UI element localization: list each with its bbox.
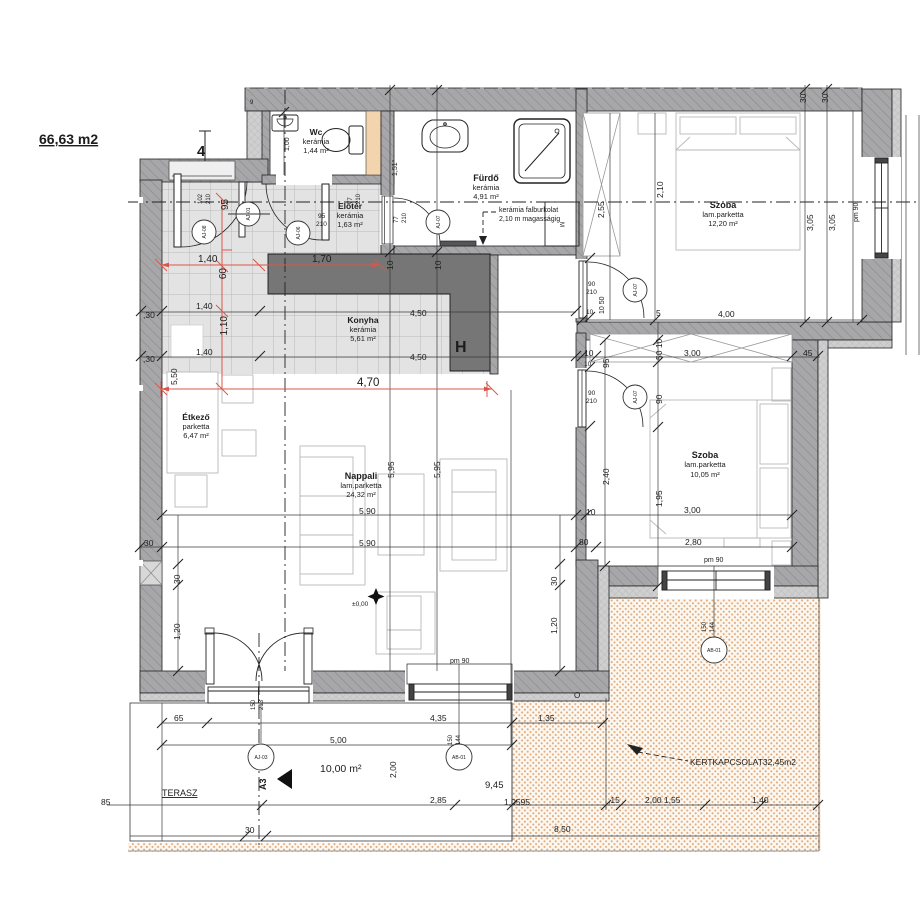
svg-text:3,05: 3,05 [827,214,837,231]
svg-text:,15: ,15 [608,795,620,805]
svg-text:lam.parketta: lam.parketta [684,460,726,469]
svg-text:77: 77 [394,216,400,223]
svg-text:30: 30 [144,538,154,548]
svg-text:AJ-06: AJ-06 [296,226,302,239]
svg-text:1,40: 1,40 [196,301,213,311]
svg-text:2,00 1,55: 2,00 1,55 [645,795,681,805]
svg-text:1,40: 1,40 [198,254,218,265]
svg-text:Wc: Wc [310,127,323,137]
svg-text:lam.parketta: lam.parketta [340,481,382,490]
svg-text:90: 90 [588,281,596,288]
svg-text:pm 90: pm 90 [853,202,860,222]
svg-text:95: 95 [220,199,231,211]
svg-text:50 10: 50 10 [654,338,664,360]
svg-text:,30: ,30 [143,354,155,364]
svg-text:85: 85 [101,797,111,807]
svg-text:5,00: 5,00 [330,735,347,745]
svg-text:144: 144 [456,734,462,745]
svg-text:4: 4 [197,143,206,160]
svg-text:2,55: 2,55 [596,201,606,218]
svg-text:4,50: 4,50 [410,308,427,318]
svg-text:2,10 m magasságig: 2,10 m magasságig [499,216,560,223]
svg-text:Szoba: Szoba [710,200,737,210]
svg-text:30: 30 [245,825,255,835]
svg-text:1,00: 1,00 [284,137,291,151]
svg-text:30: 30 [549,576,559,586]
svg-text:AJ-03: AJ-03 [254,755,267,761]
svg-text:AJ-07: AJ-07 [633,283,639,296]
svg-text:5,90: 5,90 [359,538,376,548]
svg-text:1,0595: 1,0595 [504,797,530,807]
svg-text:210: 210 [316,221,327,228]
svg-text:kerámia: kerámia [350,325,378,334]
svg-text:10: 10 [586,309,594,316]
svg-text:H: H [455,339,467,356]
svg-text:5: 5 [656,308,661,318]
svg-text:5,90: 5,90 [359,506,376,516]
svg-text:150: 150 [251,699,257,710]
svg-text:24,32 m²: 24,32 m² [346,490,376,499]
svg-text:pm 90: pm 90 [450,658,470,665]
svg-text:1,70: 1,70 [312,254,332,265]
svg-text:2,10: 2,10 [655,181,665,198]
svg-text:1,10: 1,10 [219,316,230,336]
svg-text:5,95: 5,95 [432,461,442,478]
svg-text:1,95: 1,95 [654,490,664,507]
svg-text:Étkező: Étkező [182,412,209,422]
svg-text:5,95: 5,95 [386,461,396,478]
svg-text:AJ-07: AJ-07 [633,390,639,403]
svg-text:pm 90: pm 90 [704,557,724,564]
svg-text:Fürdő: Fürdő [473,173,499,183]
svg-text:90: 90 [654,394,664,404]
svg-text:AJ-01: AJ-01 [246,207,252,220]
svg-text:10: 10 [385,260,395,270]
svg-text:kerámia falburkolat: kerámia falburkolat [499,207,558,214]
svg-text:1,51°: 1,51° [391,159,399,176]
svg-text:kerámia: kerámia [303,137,331,146]
svg-text:10,05 m²: 10,05 m² [690,470,720,479]
svg-text:30: 30 [172,574,182,584]
svg-text:Szoba: Szoba [692,450,719,460]
svg-text:1,20: 1,20 [172,623,182,640]
svg-text:3,05: 3,05 [805,214,815,231]
svg-text:AJ-07: AJ-07 [436,215,442,228]
svg-text:210: 210 [206,193,212,204]
svg-text:3,00: 3,00 [684,505,701,515]
svg-text:1,35: 1,35 [538,713,555,723]
svg-text:2,40: 2,40 [601,468,611,485]
svg-text:AB-01: AB-01 [707,648,721,654]
svg-text:210: 210 [586,289,597,296]
svg-text:Konyha: Konyha [347,315,378,325]
svg-text:12,20 m²: 12,20 m² [708,219,738,228]
svg-text:95: 95 [601,358,611,368]
svg-text:210: 210 [402,212,408,223]
svg-text:parketta: parketta [182,422,210,431]
svg-text:4,50: 4,50 [410,352,427,362]
svg-text:4,35: 4,35 [430,713,447,723]
svg-text:4,91 m²: 4,91 m² [473,192,499,201]
svg-text:,30: ,30 [143,310,155,320]
svg-text:5,50: 5,50 [169,368,179,385]
svg-text:4,70: 4,70 [357,377,379,389]
svg-text:30: 30 [798,93,808,103]
svg-text:90: 90 [588,390,596,397]
svg-text:8,50: 8,50 [554,824,571,834]
svg-text:O: O [574,691,580,700]
svg-text:1,63 m²: 1,63 m² [337,220,363,229]
svg-text:kerámia: kerámia [473,183,501,192]
svg-text:66,63 m2: 66,63 m2 [39,131,98,147]
svg-text:1,40: 1,40 [196,347,213,357]
svg-text:4,00: 4,00 [718,309,735,319]
svg-text:±0,00: ±0,00 [352,601,369,608]
svg-text:45: 45 [803,348,813,358]
svg-text:6,47 m²: 6,47 m² [183,431,209,440]
svg-text:3,00: 3,00 [684,348,701,358]
svg-text:150: 150 [448,734,454,745]
svg-text:77: 77 [348,197,354,204]
svg-text:10: 10 [586,507,596,517]
svg-text:9,45: 9,45 [485,780,504,791]
svg-text:10: 10 [584,348,594,358]
svg-text:10: 10 [433,260,443,270]
svg-text:150: 150 [702,621,708,632]
svg-text:A3: A3 [258,778,268,790]
svg-text:kerámia: kerámia [337,211,365,220]
svg-text:80: 80 [579,537,589,547]
svg-text:95: 95 [318,213,326,220]
svg-text:1,40: 1,40 [752,795,769,805]
svg-text:60: 60 [218,268,229,280]
svg-text:1,20: 1,20 [549,617,559,634]
svg-text:10,00 m²: 10,00 m² [320,763,362,775]
svg-text:144: 144 [710,621,716,632]
svg-text:2,85: 2,85 [430,795,447,805]
svg-text:30: 30 [820,93,830,103]
svg-text:210: 210 [356,193,362,204]
svg-text:Nappali: Nappali [345,471,378,481]
svg-text:KERTKAPCSOLAT32,45m2: KERTKAPCSOLAT32,45m2 [690,757,796,767]
svg-text:lam.parketta: lam.parketta [702,210,744,219]
svg-text:2,80: 2,80 [685,537,702,547]
svg-text:10: 10 [584,361,592,368]
svg-text:TERASZ: TERASZ [162,788,198,798]
svg-text:210: 210 [586,398,597,405]
svg-text:2,00: 2,00 [388,761,398,778]
svg-text:M: M [558,222,564,227]
svg-text:1,44 m²: 1,44 m² [303,146,329,155]
svg-text:65: 65 [174,713,184,723]
svg-text:10 50: 10 50 [599,296,606,314]
svg-text:102: 102 [198,193,204,204]
svg-text:5,61 m²: 5,61 m² [350,334,376,343]
svg-text:213: 213 [259,699,265,710]
svg-text:AB-01: AB-01 [452,755,466,761]
svg-text:AJ-08: AJ-08 [202,225,208,238]
